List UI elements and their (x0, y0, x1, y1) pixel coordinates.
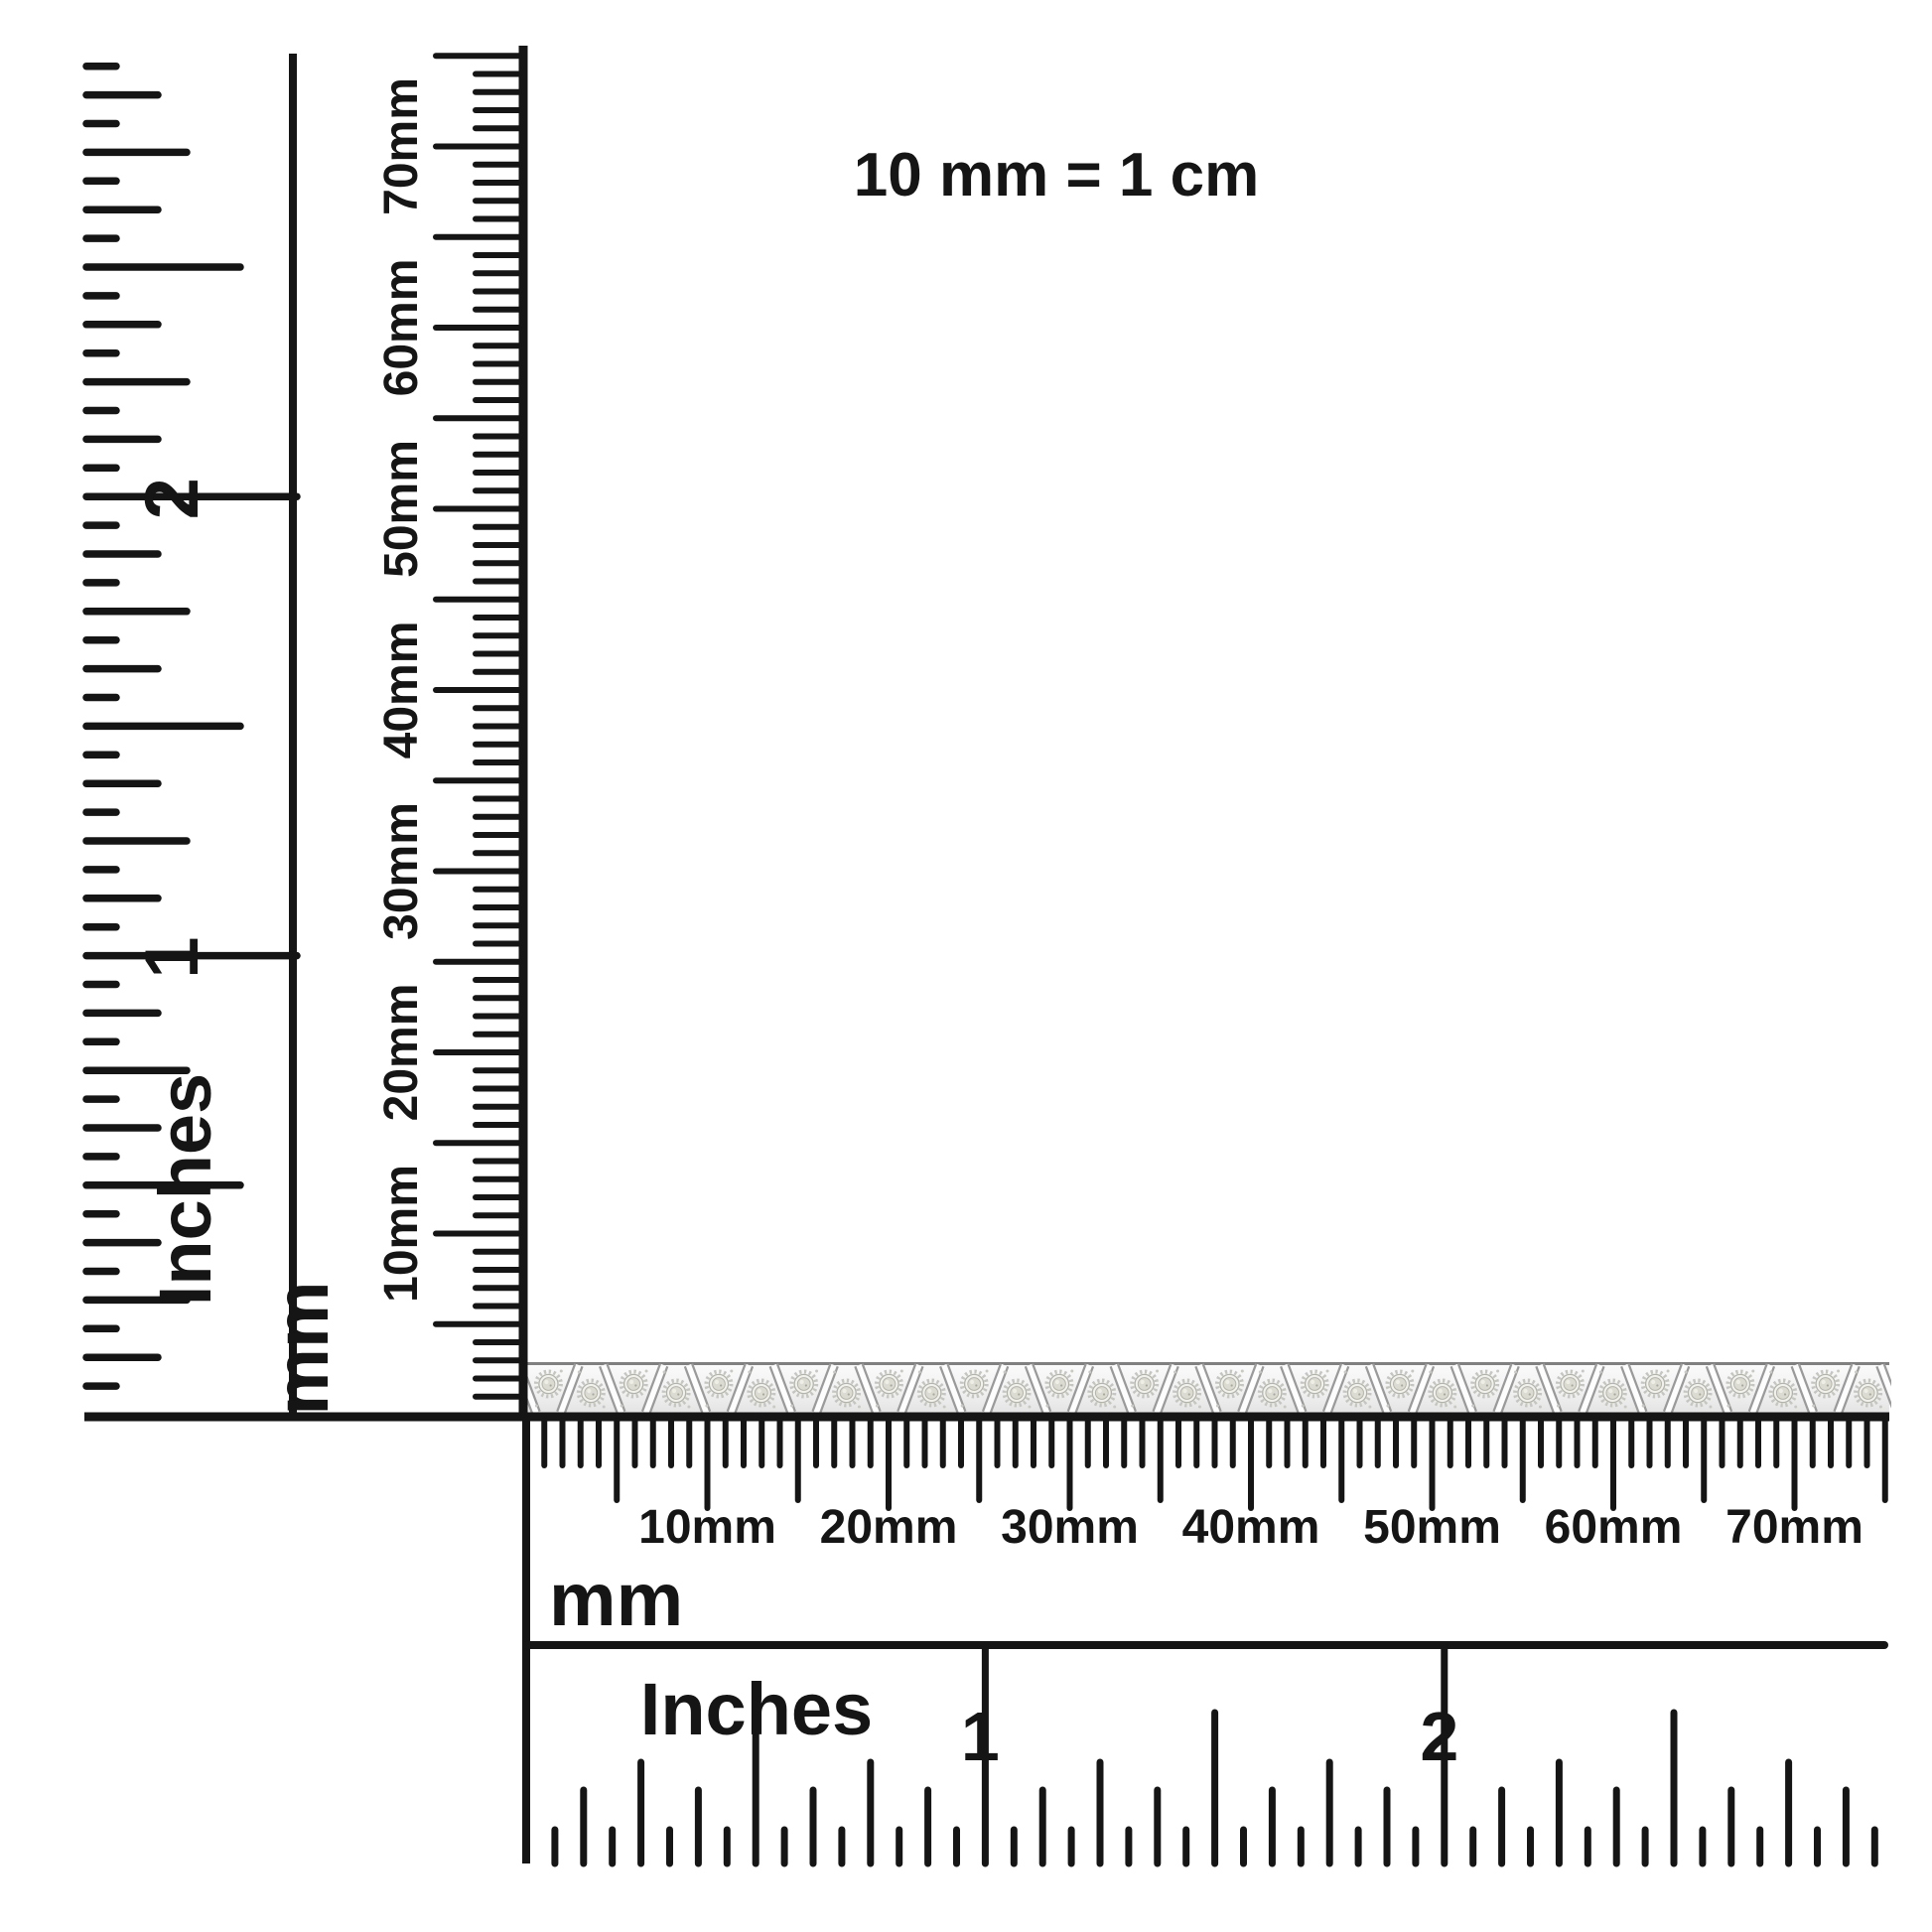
diamond-facet-highlight (842, 1389, 846, 1393)
metal-sparkle (1028, 1406, 1031, 1409)
diamond-facet-shadow (932, 1393, 934, 1395)
diamond-facet-highlight (1736, 1380, 1740, 1384)
diamond-facet-highlight (970, 1380, 974, 1384)
horizontal-inch-ruler-unit-label: Inches (640, 1668, 873, 1750)
metal-sparkle (833, 1371, 836, 1374)
diamond-facet-highlight (1396, 1380, 1400, 1384)
metal-sparkle (645, 1370, 648, 1373)
diamond-facet-highlight (1523, 1389, 1527, 1393)
mm-tick-label: 60mm (375, 259, 428, 397)
diamond-facet-shadow (1401, 1384, 1403, 1386)
diamond-facet-highlight (1608, 1389, 1612, 1393)
metal-sparkle (1709, 1406, 1712, 1409)
metal-sparkle (1453, 1406, 1456, 1409)
diamond-facet-shadow (762, 1393, 764, 1395)
diamond (1394, 1378, 1407, 1391)
diamond (755, 1387, 767, 1400)
inch-number: 1 (130, 936, 214, 978)
metal-sparkle (1624, 1406, 1627, 1409)
metal-sparkle (1471, 1405, 1474, 1408)
mm-tick-label: 20mm (375, 984, 428, 1122)
diamond-facet-shadow (1444, 1393, 1446, 1395)
diamond (1180, 1387, 1193, 1400)
diamond-facet-shadow (1188, 1393, 1190, 1395)
diamond (1053, 1378, 1066, 1391)
metal-sparkle (1557, 1405, 1560, 1408)
diamond (1776, 1387, 1789, 1400)
mm-tick-label: 60mm (1545, 1501, 1683, 1554)
diamond (1266, 1387, 1279, 1400)
diamond-facet-highlight (1013, 1389, 1017, 1393)
diamond (585, 1387, 598, 1400)
diamond (968, 1378, 981, 1391)
metal-sparkle (858, 1406, 861, 1409)
diamond-facet-highlight (1863, 1389, 1867, 1393)
diamond-facet-shadow (1827, 1384, 1829, 1386)
diamond-facet-highlight (715, 1380, 719, 1384)
diamond-facet-shadow (1358, 1393, 1360, 1395)
diamond-facet-highlight (1353, 1389, 1357, 1393)
diamond (1138, 1378, 1151, 1391)
diamond (1564, 1378, 1577, 1391)
metal-sparkle (1496, 1370, 1499, 1373)
diamond (713, 1378, 726, 1391)
diamond-facet-highlight (1481, 1380, 1485, 1384)
mm-tick-label: 40mm (375, 621, 428, 759)
diamond-facet-shadow (1784, 1393, 1786, 1395)
metal-sparkle (1368, 1406, 1371, 1409)
diamond-facet-shadow (1486, 1384, 1488, 1386)
metal-sparkle (1726, 1405, 1729, 1408)
diamond-facet-highlight (1439, 1389, 1443, 1393)
metal-sparkle (943, 1406, 946, 1409)
diamond-facet-shadow (1103, 1393, 1105, 1395)
diamond (1521, 1387, 1534, 1400)
metal-sparkle (1131, 1405, 1134, 1408)
diamond (797, 1378, 810, 1391)
diamond-facet-shadow (592, 1393, 594, 1395)
metal-sparkle (1769, 1371, 1772, 1374)
metal-sparkle (663, 1371, 666, 1374)
diamond-facet-shadow (1273, 1393, 1275, 1395)
metal-sparkle (578, 1371, 581, 1374)
diamond-tennis-bracelet (518, 1362, 1898, 1416)
diamond-facet-highlight (587, 1389, 591, 1393)
metal-sparkle (1386, 1405, 1389, 1408)
diamond-facet-shadow (1231, 1384, 1233, 1386)
horizontal-mm-ruler-unit-label: mm (549, 1558, 683, 1642)
diamond-facet-shadow (677, 1393, 679, 1395)
horizontal-mm-ruler: 10mm20mm30mm40mm50mm60mm70mm (544, 1421, 1885, 1554)
metal-sparkle (1173, 1371, 1176, 1374)
diamond (925, 1387, 938, 1400)
metal-sparkle (1855, 1371, 1858, 1374)
diamond-facet-shadow (1572, 1384, 1574, 1386)
diamond (1309, 1378, 1321, 1391)
mm-tick-label: 50mm (375, 440, 428, 578)
metal-sparkle (730, 1370, 733, 1373)
diamond-facet-highlight (1055, 1380, 1059, 1384)
diamond (1692, 1387, 1705, 1400)
metal-sparkle (790, 1405, 793, 1408)
metal-sparkle (815, 1370, 818, 1373)
diamond (1862, 1387, 1874, 1400)
mm-tick-label: 70mm (375, 77, 428, 215)
diamond (840, 1387, 853, 1400)
diamond-facet-shadow (1869, 1393, 1871, 1395)
diamond-facet-shadow (720, 1384, 722, 1386)
diamond (1095, 1387, 1108, 1400)
metal-sparkle (1685, 1371, 1688, 1374)
diamond (1734, 1378, 1747, 1391)
mm-tick-label: 70mm (1725, 1501, 1863, 1554)
metal-sparkle (1302, 1405, 1305, 1408)
mm-tick-label: 10mm (375, 1165, 428, 1303)
diamond-facet-shadow (1613, 1393, 1615, 1395)
inch-number: 2 (130, 478, 214, 519)
diamond-facet-highlight (1694, 1389, 1698, 1393)
metal-sparkle (1259, 1371, 1262, 1374)
diamond-facet-highlight (1098, 1389, 1102, 1393)
metal-sparkle (1156, 1370, 1159, 1373)
vertical-inch-ruler-unit-label: Inches (144, 1073, 226, 1306)
diamond-facet-shadow (848, 1393, 850, 1395)
diamond-facet-highlight (1268, 1389, 1272, 1393)
diamond-facet-shadow (1315, 1384, 1317, 1386)
diamond-facet-highlight (758, 1389, 761, 1393)
diamond-facet-highlight (1822, 1380, 1826, 1384)
metal-sparkle (1879, 1406, 1882, 1409)
diamond-facet-highlight (1225, 1380, 1229, 1384)
mm-tick-label: 30mm (1001, 1501, 1139, 1554)
diamond-facet-highlight (927, 1389, 931, 1393)
diamond-facet-highlight (1141, 1380, 1145, 1384)
diamond (1649, 1378, 1662, 1391)
diamond-facet-highlight (1566, 1380, 1570, 1384)
metal-sparkle (1751, 1370, 1754, 1373)
metal-sparkle (748, 1371, 751, 1374)
metal-sparkle (1004, 1371, 1007, 1374)
diamond-facet-highlight (544, 1380, 548, 1384)
diamond-facet-highlight (1651, 1380, 1655, 1384)
diamond-facet-highlight (1182, 1389, 1186, 1393)
product-measurement-image: 12 10mm20mm30mm40mm50mm60mm70mm 10mm20mm… (0, 0, 1932, 1932)
metal-sparkle (1326, 1370, 1329, 1373)
measurement-canvas: 12 10mm20mm30mm40mm50mm60mm70mm 10mm20mm… (0, 0, 1932, 1932)
mm-tick-label: 10mm (638, 1501, 776, 1554)
metal-sparkle (772, 1406, 775, 1409)
diamond (670, 1387, 683, 1400)
metal-sparkle (1429, 1371, 1432, 1374)
diamond-facet-shadow (805, 1384, 807, 1386)
diamond-facet-shadow (1018, 1393, 1020, 1395)
diamond-facet-shadow (975, 1384, 977, 1386)
diamond-facet-highlight (672, 1389, 676, 1393)
diamond-facet-highlight (1779, 1389, 1783, 1393)
metal-sparkle (1241, 1370, 1244, 1373)
diamond-facet-highlight (800, 1380, 804, 1384)
mm-tick-label: 20mm (820, 1501, 958, 1554)
diamond-facet-shadow (891, 1384, 893, 1386)
diamond-facet-shadow (1060, 1384, 1062, 1386)
mm-tick-label: 50mm (1363, 1501, 1501, 1554)
metal-sparkle (1284, 1406, 1287, 1409)
metal-sparkle (1642, 1405, 1645, 1408)
diamond-facet-highlight (1311, 1380, 1314, 1384)
metal-sparkle (1216, 1405, 1219, 1408)
diamond (1351, 1387, 1364, 1400)
diamond (1436, 1387, 1449, 1400)
metal-sparkle (900, 1370, 903, 1373)
inch-number: 2 (1420, 1698, 1458, 1775)
metal-sparkle (1113, 1406, 1116, 1409)
metal-sparkle (1514, 1371, 1517, 1374)
diamond-facet-shadow (1741, 1384, 1743, 1386)
metal-sparkle (1045, 1405, 1048, 1408)
diamond-facet-shadow (1529, 1393, 1531, 1395)
metal-sparkle (1812, 1405, 1815, 1408)
diamond-facet-shadow (1699, 1393, 1701, 1395)
metal-sparkle (1088, 1371, 1091, 1374)
metal-sparkle (535, 1405, 538, 1408)
diamond (627, 1378, 640, 1391)
diamond-facet-shadow (1656, 1384, 1658, 1386)
metal-sparkle (1198, 1406, 1201, 1409)
diamond-facet-highlight (885, 1380, 889, 1384)
inch-number: 1 (961, 1698, 1000, 1775)
diamond (1011, 1387, 1024, 1400)
metal-sparkle (1837, 1370, 1840, 1373)
metal-sparkle (1582, 1370, 1585, 1373)
metal-sparkle (687, 1406, 690, 1409)
metal-sparkle (876, 1405, 879, 1408)
diamond-facet-shadow (634, 1384, 636, 1386)
diamond (542, 1378, 555, 1391)
metal-sparkle (1411, 1370, 1414, 1373)
metal-sparkle (1539, 1406, 1542, 1409)
vertical-mm-ruler: 10mm20mm30mm40mm50mm60mm70mm (375, 46, 523, 1421)
diamond (883, 1378, 896, 1391)
vertical-mm-ruler-unit-label: mm (260, 1281, 345, 1415)
metal-sparkle (1794, 1406, 1797, 1409)
mm-tick-label: 30mm (375, 802, 428, 940)
mm-tick-label: 40mm (1182, 1501, 1320, 1554)
metal-sparkle (986, 1370, 989, 1373)
metal-sparkle (705, 1405, 708, 1408)
scale-note: 10 mm = 1 cm (854, 141, 1259, 209)
metal-sparkle (1070, 1370, 1073, 1373)
diamond (1606, 1387, 1619, 1400)
metal-sparkle (918, 1371, 921, 1374)
diamond (1819, 1378, 1832, 1391)
metal-sparkle (1599, 1371, 1602, 1374)
metal-sparkle (1667, 1370, 1670, 1373)
diamond (1223, 1378, 1236, 1391)
metal-sparkle (961, 1405, 964, 1408)
metal-sparkle (1344, 1371, 1347, 1374)
diamond (1478, 1378, 1491, 1391)
diamond-facet-shadow (1146, 1384, 1148, 1386)
metal-sparkle (560, 1370, 563, 1373)
metal-sparkle (621, 1405, 623, 1408)
diamond-facet-highlight (629, 1380, 633, 1384)
diamond-facet-shadow (550, 1384, 552, 1386)
metal-sparkle (603, 1406, 606, 1409)
